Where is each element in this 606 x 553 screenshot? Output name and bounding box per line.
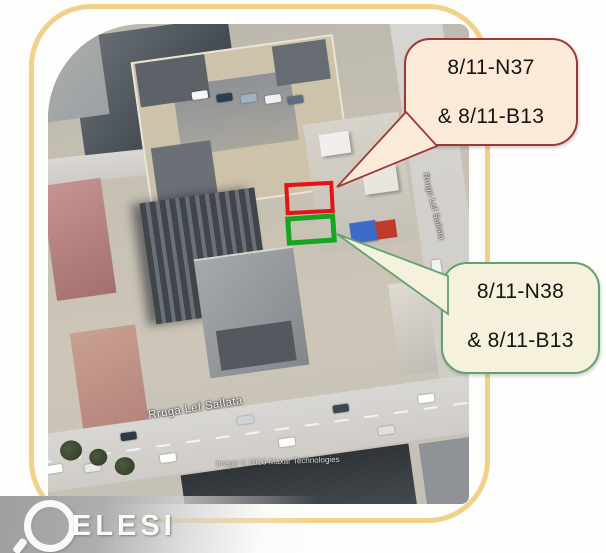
figure-canvas: Rruga Lef Sallata Rruga Lef Sallata Imag… bbox=[0, 0, 606, 553]
callout-bottom-line1: 8/11-N38 bbox=[443, 280, 598, 304]
callout-top-line2: & 8/11-B13 bbox=[406, 105, 576, 129]
magnifier-handle-icon bbox=[12, 537, 28, 553]
callout-top: 8/11-N37 & 8/11-B13 bbox=[404, 38, 578, 146]
callout-bottom: 8/11-N38 & 8/11-B13 bbox=[441, 262, 600, 374]
callout-top-line1: 8/11-N37 bbox=[406, 56, 576, 80]
red-marker-rect bbox=[284, 181, 335, 216]
callout-bottom-line2: & 8/11-B13 bbox=[443, 329, 598, 353]
logo-letters: ELESI bbox=[72, 510, 176, 543]
green-marker-rect bbox=[285, 213, 337, 245]
celesi-logo: ELESI bbox=[10, 498, 310, 552]
magnifier-icon bbox=[24, 500, 76, 552]
